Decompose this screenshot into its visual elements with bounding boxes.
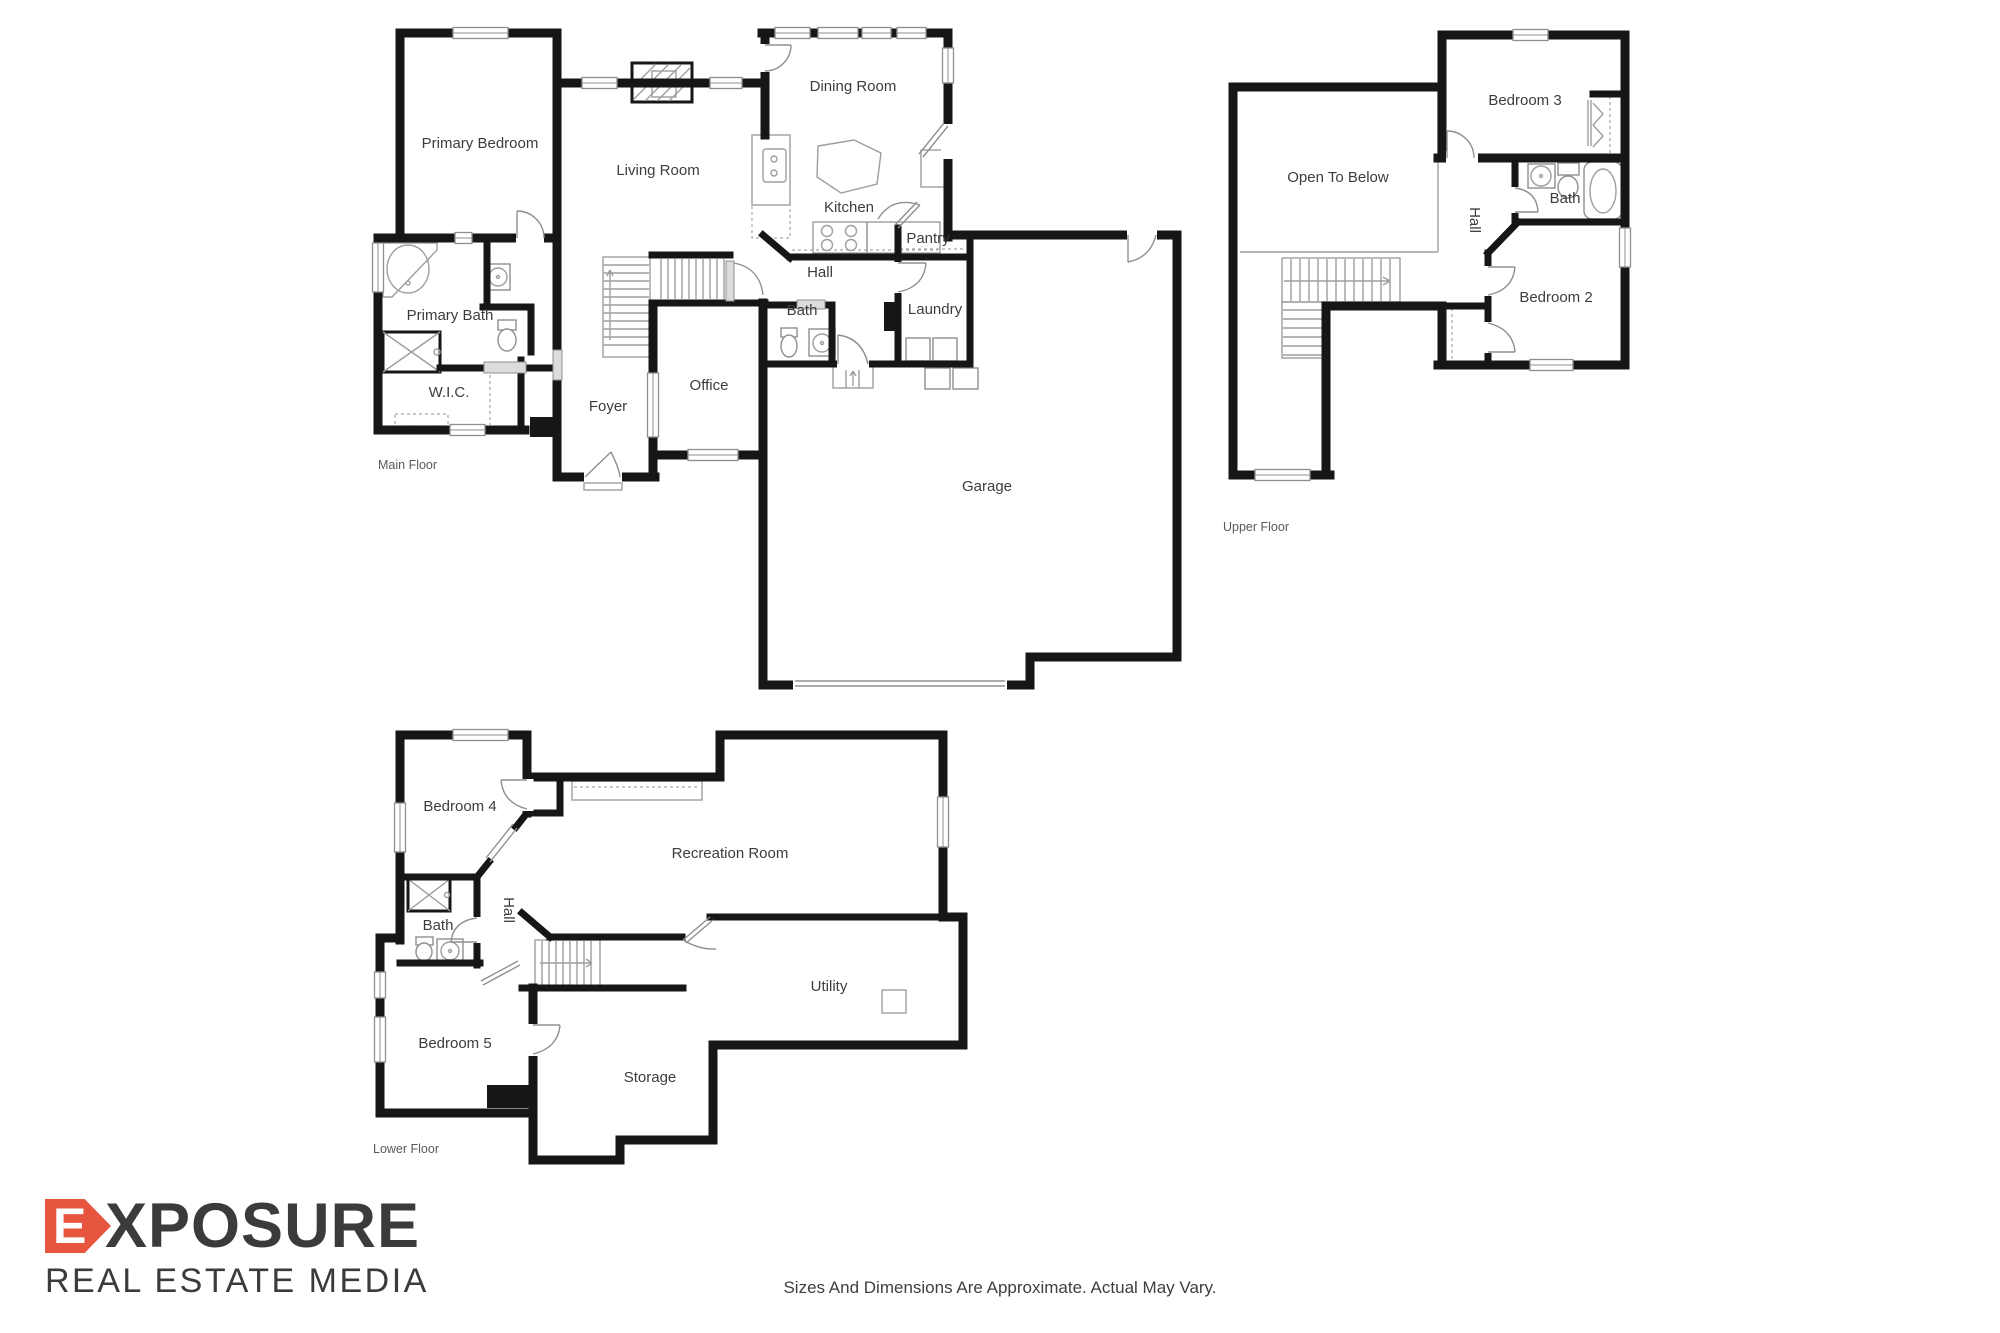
logo-brand-text: XPOSURE: [105, 1199, 420, 1253]
room-label-utility: Utility: [811, 978, 848, 995]
room-label-wic: W.I.C.: [429, 384, 470, 401]
room-label-storage: Storage: [624, 1069, 677, 1086]
room-label-bedroom5: Bedroom 5: [418, 1035, 491, 1052]
room-label-lower-hall: Hall: [500, 897, 517, 923]
room-label-pantry: Pantry: [906, 230, 950, 247]
room-label-kitchen: Kitchen: [824, 199, 874, 216]
main-stairs: [603, 257, 724, 357]
main-bath-fixtures: [781, 328, 835, 357]
upper-floor-doors: [1447, 131, 1538, 352]
room-label-dining-room: Dining Room: [810, 78, 897, 95]
room-label-bath: Bath: [787, 302, 818, 319]
room-label-office: Office: [690, 377, 729, 394]
lower-closet-strip: [572, 781, 702, 800]
room-label-primary-bedroom: Primary Bedroom: [422, 135, 539, 152]
lower-stairs: [535, 940, 600, 988]
room-label-primary-bath: Primary Bath: [407, 307, 494, 324]
lower-floor-labels: Bedroom 4 Recreation Room Bath Hall Util…: [373, 798, 848, 1156]
disclaimer-text: Sizes And Dimensions Are Approximate. Ac…: [0, 1278, 2000, 1298]
logo-brand-row: E XPOSURE: [45, 1198, 465, 1254]
room-label-garage: Garage: [962, 478, 1012, 495]
room-label-open-to-below: Open To Below: [1287, 169, 1389, 186]
tub-icon: [387, 245, 429, 293]
upper-floor-walls: [1233, 35, 1625, 475]
room-label-bedroom4: Bedroom 4: [423, 798, 496, 815]
porch-step: [584, 483, 622, 490]
lower-floor: Bedroom 4 Recreation Room Bath Hall Util…: [373, 730, 963, 1161]
floor-label-lower: Lower Floor: [373, 1142, 439, 1156]
floor-label-main: Main Floor: [378, 458, 437, 472]
floor-plan-drawing: Primary Bedroom Living Room Dining Room …: [0, 0, 2000, 1333]
room-label-bedroom3: Bedroom 3: [1488, 92, 1561, 109]
floor-plan-sheet: Primary Bedroom Living Room Dining Room …: [0, 0, 2000, 1333]
furnace-icon: [882, 990, 906, 1013]
main-floor-walls: [378, 33, 1177, 685]
room-label-hall: Hall: [807, 264, 833, 281]
floor-label-upper: Upper Floor: [1223, 520, 1289, 534]
upper-stairs: [1240, 90, 1438, 358]
upper-floor: Open To Below Bedroom 3 Bath Hall Bedroo…: [1223, 30, 1631, 535]
room-label-foyer: Foyer: [589, 398, 627, 415]
room-label-upper-hall: Hall: [1466, 207, 1483, 233]
kitchen-island: [817, 140, 881, 193]
upper-floor-door-gaps: [1446, 151, 1521, 353]
room-label-lower-bath: Bath: [423, 917, 454, 934]
room-label-upper-bath: Bath: [1550, 190, 1581, 207]
utility-fixtures: [882, 990, 906, 1013]
main-floor: Primary Bedroom Living Room Dining Room …: [373, 28, 1178, 692]
logo-house-icon: E: [45, 1199, 111, 1253]
room-label-recreation-room: Recreation Room: [672, 845, 789, 862]
room-label-bedroom2: Bedroom 2: [1519, 289, 1592, 306]
lower-floor-doors: [451, 780, 716, 1054]
toilet-icon: [1558, 163, 1579, 175]
room-label-living-room: Living Room: [616, 162, 699, 179]
room-label-laundry: Laundry: [908, 301, 963, 318]
logo-first-letter: E: [45, 1199, 86, 1253]
